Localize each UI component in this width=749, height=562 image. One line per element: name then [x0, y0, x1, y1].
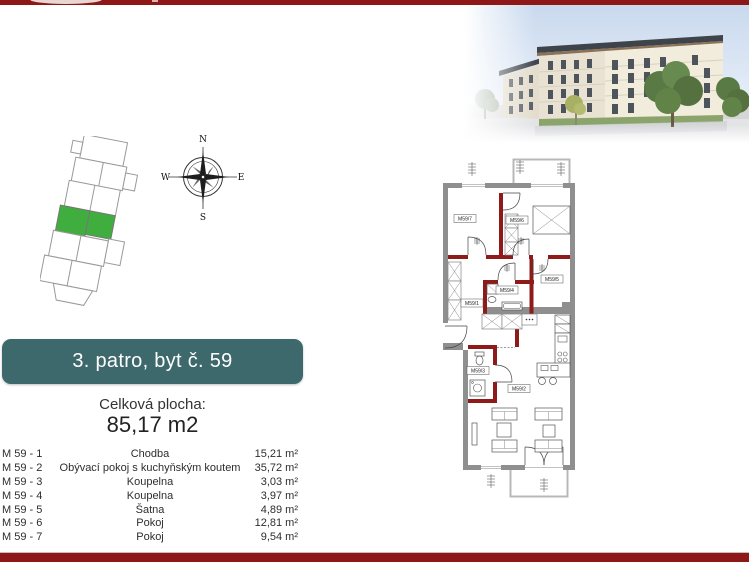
- room-code: M 59 - 5: [2, 504, 82, 516]
- room-area: 15,21 m²: [218, 448, 298, 460]
- room-code: M 59 - 7: [2, 531, 82, 543]
- floor-plan: M59/7 M59/6 M59/5 M59/4 M59/1 M59/3 M59/…: [432, 152, 582, 498]
- room-area: 35,72 m²: [240, 462, 298, 474]
- table-row: M 59 - 2 Obývací pokoj s kuchyňským kout…: [2, 461, 298, 475]
- floor-banner-label: 3. patro, byt č. 59: [72, 350, 232, 373]
- compass-w: W: [161, 173, 171, 183]
- building-render-image: [455, 5, 749, 149]
- room-name: Chodba: [82, 448, 218, 460]
- plan-room-label: M59/2: [512, 387, 526, 393]
- total-area-label: Celková plocha:: [0, 396, 305, 413]
- table-row: M 59 - 5 Šatna 4,89 m²: [2, 503, 298, 517]
- room-area: 3,03 m²: [218, 476, 298, 488]
- logo-arc: [30, 0, 102, 4]
- footer-bar: [0, 552, 749, 562]
- plan-room-label: M59/6: [510, 218, 524, 224]
- bed: [533, 206, 570, 234]
- compass-n: N: [199, 135, 207, 145]
- plan-room-label: M59/5: [545, 277, 559, 283]
- compass-s: S: [200, 213, 206, 223]
- plan-room-label: M59/7: [458, 217, 472, 223]
- room-name: Koupelna: [82, 476, 218, 488]
- room-name: Šatna: [82, 504, 218, 516]
- room-code: M 59 - 4: [2, 490, 82, 502]
- living-room-furniture: [472, 408, 562, 452]
- table-row: M 59 - 4 Koupelna 3,97 m²: [2, 489, 298, 503]
- compass-e: E: [238, 173, 245, 183]
- room-name: Obývací pokoj s kuchyňským koutem: [60, 462, 241, 474]
- floor-banner: 3. patro, byt č. 59: [2, 339, 303, 384]
- room-name: Koupelna: [82, 490, 218, 502]
- room-table: M 59 - 1 Chodba 15,21 m² M 59 - 2 Obývac…: [2, 447, 298, 544]
- room-code: M 59 - 6: [2, 517, 82, 529]
- room-area: 9,54 m²: [218, 531, 298, 543]
- page: N E S W: [0, 0, 749, 562]
- room-area: 4,89 m²: [218, 504, 298, 516]
- bottom-balcony: [511, 470, 568, 497]
- table-row: M 59 - 3 Koupelna 3,03 m²: [2, 475, 298, 489]
- total-area-value: 85,17 m2: [0, 412, 305, 438]
- room-code: M 59 - 1: [2, 448, 82, 460]
- floor-plan-drawing: M59/7 M59/6 M59/5 M59/4 M59/1 M59/3 M59/…: [432, 152, 582, 498]
- plan-room-label: M59/4: [500, 288, 514, 294]
- kitchen: [537, 315, 570, 385]
- plan-room-label: M59/3: [471, 369, 485, 375]
- table-row: M 59 - 1 Chodba 15,21 m²: [2, 447, 298, 461]
- render-bottom-fade: [455, 125, 749, 149]
- room-code: M 59 - 2: [2, 462, 60, 474]
- room-area: 3,97 m²: [218, 490, 298, 502]
- room-name: Pokoj: [82, 517, 218, 529]
- room-area: 12,81 m²: [218, 517, 298, 529]
- plan-room-label: M59/1: [465, 301, 479, 307]
- room-name: Pokoj: [82, 531, 218, 543]
- table-row: M 59 - 7 Pokoj 9,54 m²: [2, 530, 298, 544]
- table-row: M 59 - 6 Pokoj 12,81 m²: [2, 516, 298, 530]
- compass-icon: N E S W: [161, 131, 245, 223]
- unit-locator-diagram: [40, 136, 162, 308]
- header-notch: [152, 0, 158, 2]
- room-code: M 59 - 3: [2, 476, 82, 488]
